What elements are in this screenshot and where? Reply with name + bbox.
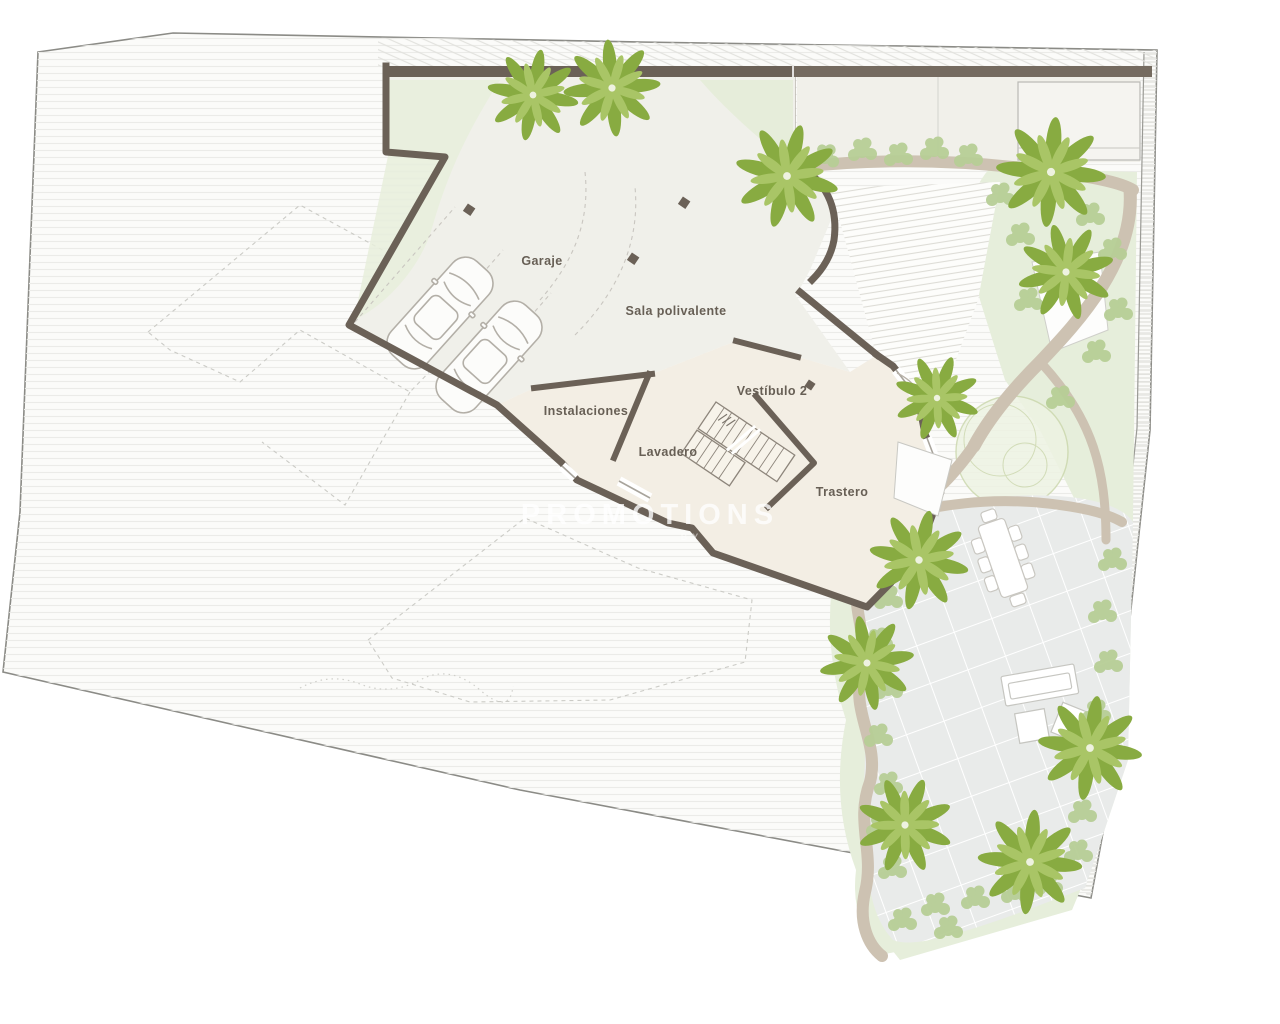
floor-plan-canvas: Garaje Sala polivalente Vestíbulo 2 Inst… — [0, 0, 1280, 1024]
top-wall-band-right — [793, 66, 1152, 77]
floor-plan-page: Garaje Sala polivalente Vestíbulo 2 Inst… — [0, 0, 1280, 1024]
street-strip-hatch — [378, 38, 1155, 66]
watermark-subtext: BY — [681, 532, 704, 542]
room-label-trastero: Trastero — [816, 485, 869, 499]
room-label-garaje: Garaje — [521, 254, 562, 268]
watermark-text: PROMOTIONS — [521, 499, 779, 531]
room-label-vestibulo-2: Vestíbulo 2 — [737, 384, 807, 398]
room-label-sala-polivalente: Sala polivalente — [626, 304, 727, 318]
room-label-lavadero: Lavadero — [639, 445, 698, 459]
room-label-instalaciones: Instalaciones — [544, 404, 628, 418]
